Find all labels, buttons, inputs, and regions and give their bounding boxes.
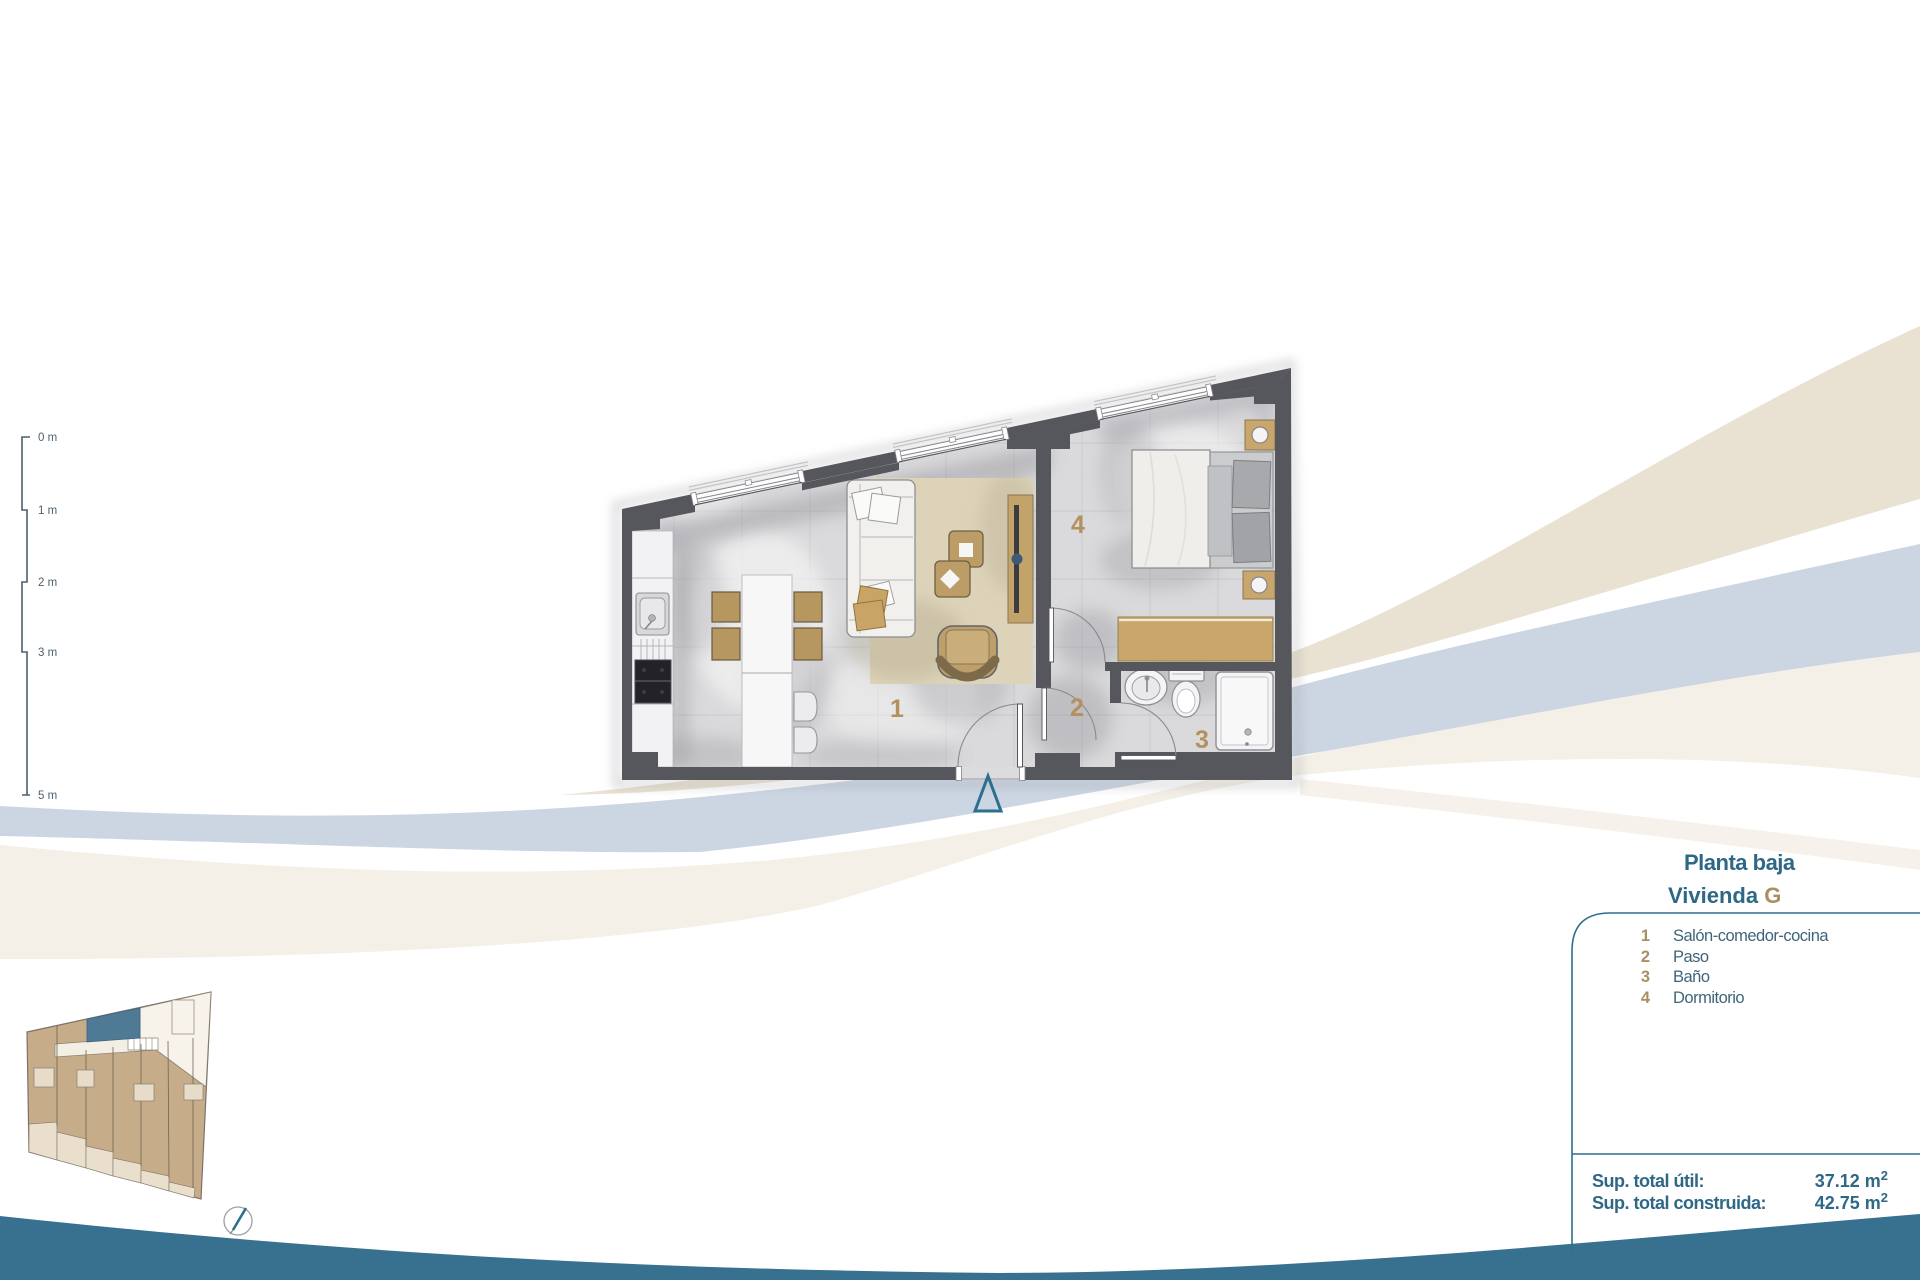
svg-text:Vivienda G: Vivienda G [1668, 883, 1781, 908]
svg-text:4: 4 [1641, 989, 1651, 1007]
svg-text:Baño: Baño [1673, 968, 1710, 986]
svg-text:3: 3 [1641, 968, 1650, 986]
svg-text:Sup. total construida:: Sup. total construida: [1592, 1193, 1766, 1213]
svg-text:Paso: Paso [1673, 948, 1709, 966]
svg-text:2: 2 [1070, 694, 1084, 722]
svg-text:2: 2 [1641, 948, 1650, 966]
svg-text:Dormitorio: Dormitorio [1673, 989, 1744, 1007]
svg-text:1: 1 [1641, 927, 1650, 945]
svg-text:42.75 m2: 42.75 m2 [1815, 1190, 1888, 1213]
svg-text:5 m: 5 m [38, 790, 57, 802]
svg-text:Sup. total útil:: Sup. total útil: [1592, 1171, 1704, 1191]
svg-text:37.12 m2: 37.12 m2 [1815, 1168, 1888, 1191]
svg-text:Salón-comedor-cocina: Salón-comedor-cocina [1673, 927, 1829, 945]
svg-text:1 m: 1 m [38, 505, 57, 517]
svg-text:2 m: 2 m [38, 577, 57, 589]
svg-text:1: 1 [890, 695, 904, 723]
svg-text:3 m: 3 m [38, 647, 57, 659]
svg-text:4: 4 [1071, 511, 1085, 539]
svg-text:0 m: 0 m [38, 432, 57, 444]
svg-text:Planta baja: Planta baja [1684, 850, 1796, 875]
svg-text:3: 3 [1195, 726, 1209, 754]
